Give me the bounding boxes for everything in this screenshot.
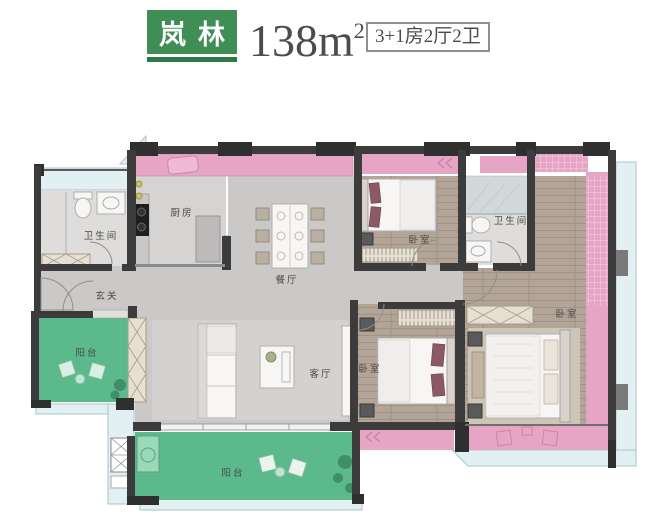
living-label: 客厅 <box>309 368 332 380</box>
nightstand-icon <box>360 404 374 417</box>
sink-accessory-icon <box>136 181 142 187</box>
coffee-table-icon <box>260 346 294 388</box>
floor-plan: 卫生间 厨房 餐厅 玄关 客厅 卧室 卫生间 卧室 卧室 阳台 阳台 <box>0 0 668 530</box>
bedroom-bottom-label: 卧室 <box>358 363 381 375</box>
wardrobe-icon-master <box>467 306 533 324</box>
bay-bedroom-top <box>358 154 458 174</box>
balcony-bottom-label: 阳台 <box>221 467 244 479</box>
toilet-icon-bath2 <box>465 217 490 233</box>
bath1-label: 卫生间 <box>84 230 119 242</box>
ac-ledge-icon <box>616 384 628 410</box>
balcony-sill <box>92 310 128 318</box>
vanity-icon-bath1 <box>97 192 125 214</box>
laundry-unit-icon <box>137 436 159 472</box>
kitchen-label: 厨房 <box>170 207 193 219</box>
bedroom-master-label: 卧室 <box>555 308 578 320</box>
bed-icon-bedroom-bottom <box>378 338 455 404</box>
bath2-label: 卫生间 <box>494 215 529 227</box>
nightstand-icon <box>360 318 374 331</box>
closet-icon-bedroom-bottom <box>398 310 458 326</box>
bedroom-top-label: 卧室 <box>408 234 431 246</box>
bench-icon <box>472 352 484 398</box>
shower-icon-bath2 <box>463 176 529 214</box>
storage-column-icon <box>128 318 146 402</box>
dresser-icon-bedroom-top <box>362 248 418 262</box>
bed-icon-master <box>472 330 570 422</box>
dining-label: 餐厅 <box>275 274 298 286</box>
bath1-window-band <box>36 168 128 190</box>
toilet-icon-bath1 <box>74 192 92 218</box>
bay-bath2 <box>480 156 529 173</box>
bay-master-bottom <box>465 426 608 450</box>
bay-cushion-icon <box>167 155 199 174</box>
floor-plan-page: 岚林 138m2 3+1房2厅2卫 <box>0 0 668 530</box>
nightstand-icon <box>468 404 482 418</box>
sofa-icon <box>198 324 236 418</box>
room-foyer-floor <box>40 266 135 313</box>
sliding-door-icon <box>160 424 332 430</box>
room-balcony-bottom-floor <box>135 432 358 500</box>
balcony-left-label: 阳台 <box>75 347 98 359</box>
bed-icon-bedroom-top <box>360 179 436 231</box>
foyer-label: 玄关 <box>95 290 118 302</box>
fridge-icon <box>196 216 220 262</box>
ac-ledge-icon <box>616 250 628 276</box>
bay-top-left <box>133 154 353 176</box>
right-glass-band <box>616 162 636 464</box>
vanity-icon-bath2 <box>466 241 491 262</box>
nightstand-icon <box>468 332 482 346</box>
dining-table-icon <box>256 204 324 268</box>
